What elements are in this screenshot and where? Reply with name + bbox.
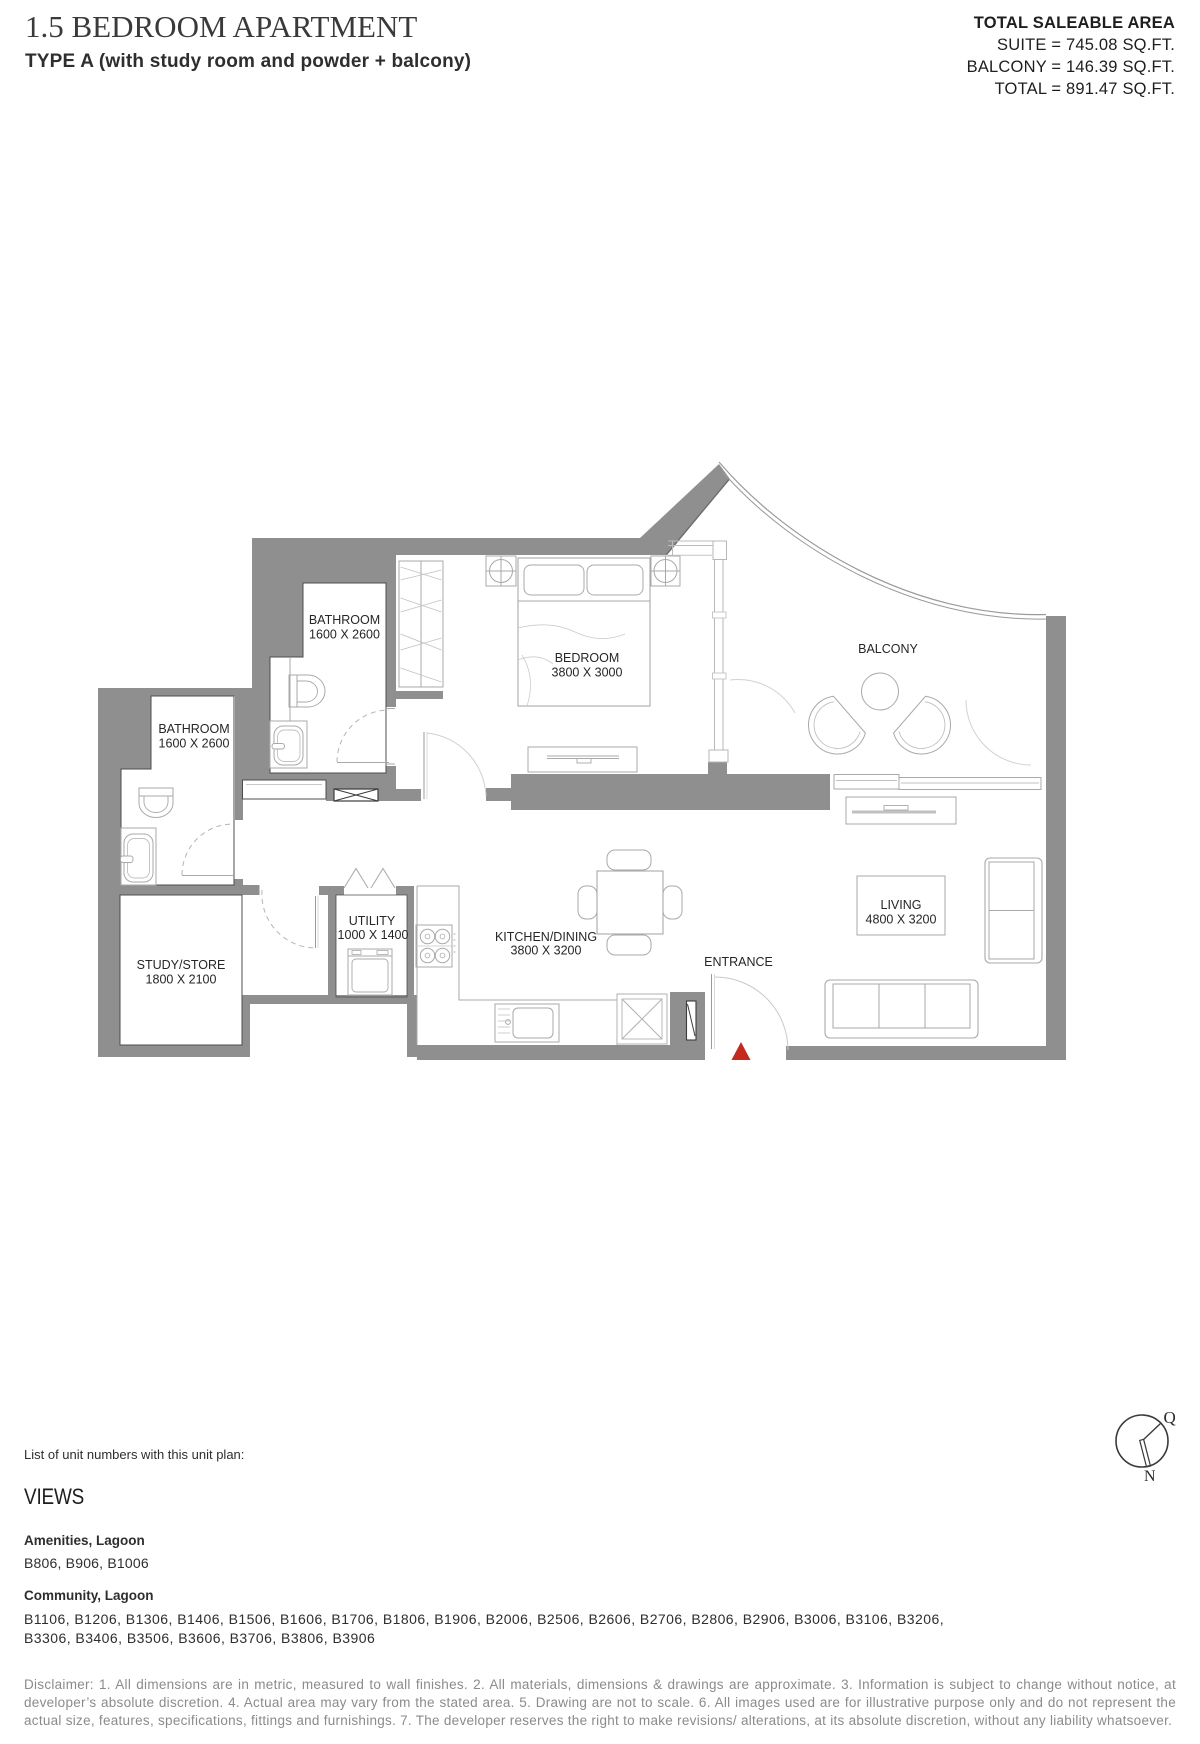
svg-text:KITCHEN/DINING: KITCHEN/DINING: [495, 930, 597, 944]
svg-text:STUDY/STORE: STUDY/STORE: [137, 958, 226, 972]
svg-text:1800 X 2100: 1800 X 2100: [146, 973, 217, 987]
svg-text:1600 X 2600: 1600 X 2600: [309, 628, 380, 642]
svg-text:1000 X 1400: 1000 X 1400: [338, 928, 409, 942]
svg-text:ENTRANCE: ENTRANCE: [704, 955, 773, 969]
svg-text:N: N: [1144, 1468, 1156, 1485]
svg-text:LIVING: LIVING: [881, 898, 922, 912]
svg-text:BALCONY: BALCONY: [858, 642, 918, 656]
svg-text:BEDROOM: BEDROOM: [555, 651, 620, 665]
svg-text:BATHROOM: BATHROOM: [309, 613, 380, 627]
svg-text:BATHROOM: BATHROOM: [158, 722, 229, 736]
svg-text:1600 X 2600: 1600 X 2600: [159, 737, 230, 751]
svg-text:Q: Q: [1164, 1408, 1176, 1427]
svg-text:3800 X 3200: 3800 X 3200: [511, 944, 582, 958]
svg-text:4800 X 3200: 4800 X 3200: [866, 913, 937, 927]
svg-text:3800 X 3000: 3800 X 3000: [552, 666, 623, 680]
svg-text:UTILITY: UTILITY: [349, 914, 396, 928]
